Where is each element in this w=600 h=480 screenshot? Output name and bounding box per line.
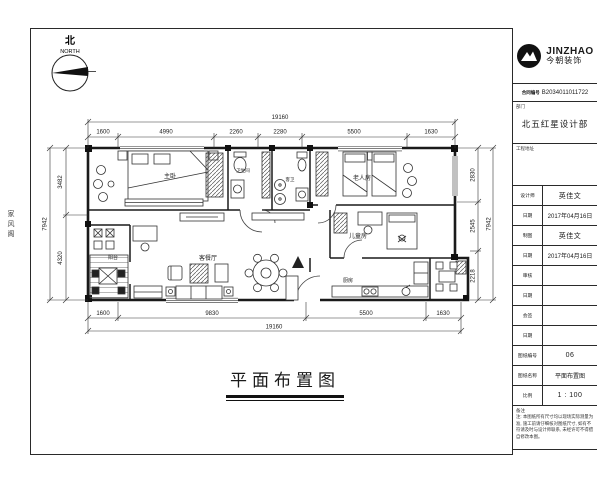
svg-text:7942: 7942	[487, 217, 493, 231]
room-label-guestbath: 客卫	[286, 176, 295, 183]
north-cn-label: 北	[65, 34, 75, 47]
svg-text:19160: 19160	[266, 325, 283, 331]
svg-text:1630: 1630	[424, 130, 438, 136]
title-underline-thick	[226, 395, 344, 398]
svg-text:1600: 1600	[96, 311, 110, 317]
wardrobe-icon	[206, 153, 223, 197]
dim-left: 3482 4320 7942	[43, 145, 89, 303]
department-label: 部门	[516, 104, 525, 110]
tb-row-countersign: 会签	[513, 306, 597, 326]
svg-text:4990: 4990	[159, 130, 173, 136]
elderly-chairs-icon	[403, 164, 417, 198]
room-label-elderly: 老人房	[353, 174, 371, 182]
department-cell: 部门 北五红星设计部	[513, 102, 597, 144]
room-label-balcony: 阳台	[108, 254, 118, 261]
dim-top: 19160 1600 4990 2260 2280 5500 1630	[85, 115, 458, 148]
department-value: 北五红星设计部	[513, 118, 597, 130]
north-en-label: NORTH	[60, 49, 79, 55]
furniture	[90, 151, 466, 300]
title-underline-thin	[226, 400, 344, 401]
address-cell: 工程地址	[513, 144, 597, 186]
contract-value: B2034011011722	[542, 90, 589, 96]
svg-text:2260: 2260	[229, 130, 243, 136]
sheet-title-text: 平面布置图	[205, 366, 365, 391]
svg-text:2545: 2545	[471, 219, 477, 233]
tb-row-sheet-number: 图纸编号 06	[513, 346, 597, 366]
tb-row-sheet-name: 图纸名称 平面布置图	[513, 366, 597, 386]
sofa-set-icon	[166, 264, 233, 299]
sheet-title: 平面布置图	[205, 366, 365, 401]
svg-text:1600: 1600	[96, 130, 110, 136]
dim-right: 2830 2545 2218 7942	[457, 145, 496, 303]
contract-label: 合同编号	[522, 90, 540, 96]
svg-text:9830: 9830	[205, 311, 219, 317]
tb-row-auditor: 审核	[513, 266, 597, 286]
room-label-children: 儿童房	[349, 232, 367, 240]
north-indicator: 北 NORTH	[52, 34, 96, 91]
right-balcony-set-icon	[436, 261, 466, 291]
title-block: JINZHAO 今朝装饰 合同编号 B2034011011722 部门 北五红星…	[512, 28, 597, 455]
remark-cell: 备注 注: 本图纸所有尺寸均以现场实际测量为准, 施工前请仔细核对图纸尺寸, 如…	[513, 406, 597, 450]
svg-text:5500: 5500	[347, 130, 361, 136]
master-chairs-icon	[94, 166, 115, 202]
elderly-beds-icon	[316, 152, 396, 196]
room-label-bath: 卫生间	[236, 167, 250, 174]
dim-bottom: 1600 9830 5500 1630 19160	[85, 302, 464, 334]
room-label-master: 主卧	[164, 172, 176, 180]
room-label-kitchen: 厨房	[343, 277, 353, 284]
drawing-sheet: 家风阁 北 NORTH	[0, 0, 600, 480]
svg-text:1630: 1630	[436, 311, 450, 317]
svg-text:3482: 3482	[58, 175, 64, 189]
tb-row-date2: 日期 2017年04月16日	[513, 246, 597, 266]
svg-text:2218: 2218	[471, 269, 477, 283]
remark-text: 注: 本图纸所有尺寸均以现场实际测量为准, 施工前请仔细核对图纸尺寸, 如有不符…	[516, 414, 595, 440]
desk-icon	[133, 226, 162, 298]
tb-row-date4: 日期	[513, 326, 597, 346]
svg-text:5500: 5500	[359, 311, 373, 317]
brand-header: JINZHAO 今朝装饰	[513, 28, 597, 84]
north-arrow-icon	[52, 67, 88, 76]
children-room-icon	[334, 212, 417, 249]
dining-table-icon	[245, 254, 298, 300]
contract-number-cell: 合同编号 B2034011011722	[513, 84, 597, 102]
room-label-livingdining: 客餐厅	[199, 254, 217, 262]
svg-text:7942: 7942	[43, 217, 49, 231]
tb-row-designer: 设计师 英佳文	[513, 186, 597, 206]
svg-text:2830: 2830	[471, 168, 477, 182]
tb-row-scale: 比例 1 : 100	[513, 386, 597, 406]
address-label: 工程地址	[516, 146, 534, 152]
svg-text:19160: 19160	[272, 115, 289, 121]
left-balcony-set-icon	[90, 229, 128, 298]
jinzhao-logo-icon	[516, 43, 542, 69]
entry-arrow-icon	[292, 256, 304, 268]
brand-name-cn: 今朝装饰	[546, 57, 593, 66]
tb-row-drafter: 制图 英佳文	[513, 226, 597, 246]
brand-name-en: JINZHAO	[546, 46, 593, 57]
bathroom-fixtures-icon	[231, 152, 270, 198]
tb-row-date3: 日期	[513, 286, 597, 306]
floor-plan-canvas: 北 NORTH	[0, 0, 600, 480]
svg-text:4320: 4320	[58, 251, 64, 265]
svg-text:2280: 2280	[273, 130, 287, 136]
tb-row-date1: 日期 2017年04月16日	[513, 206, 597, 226]
